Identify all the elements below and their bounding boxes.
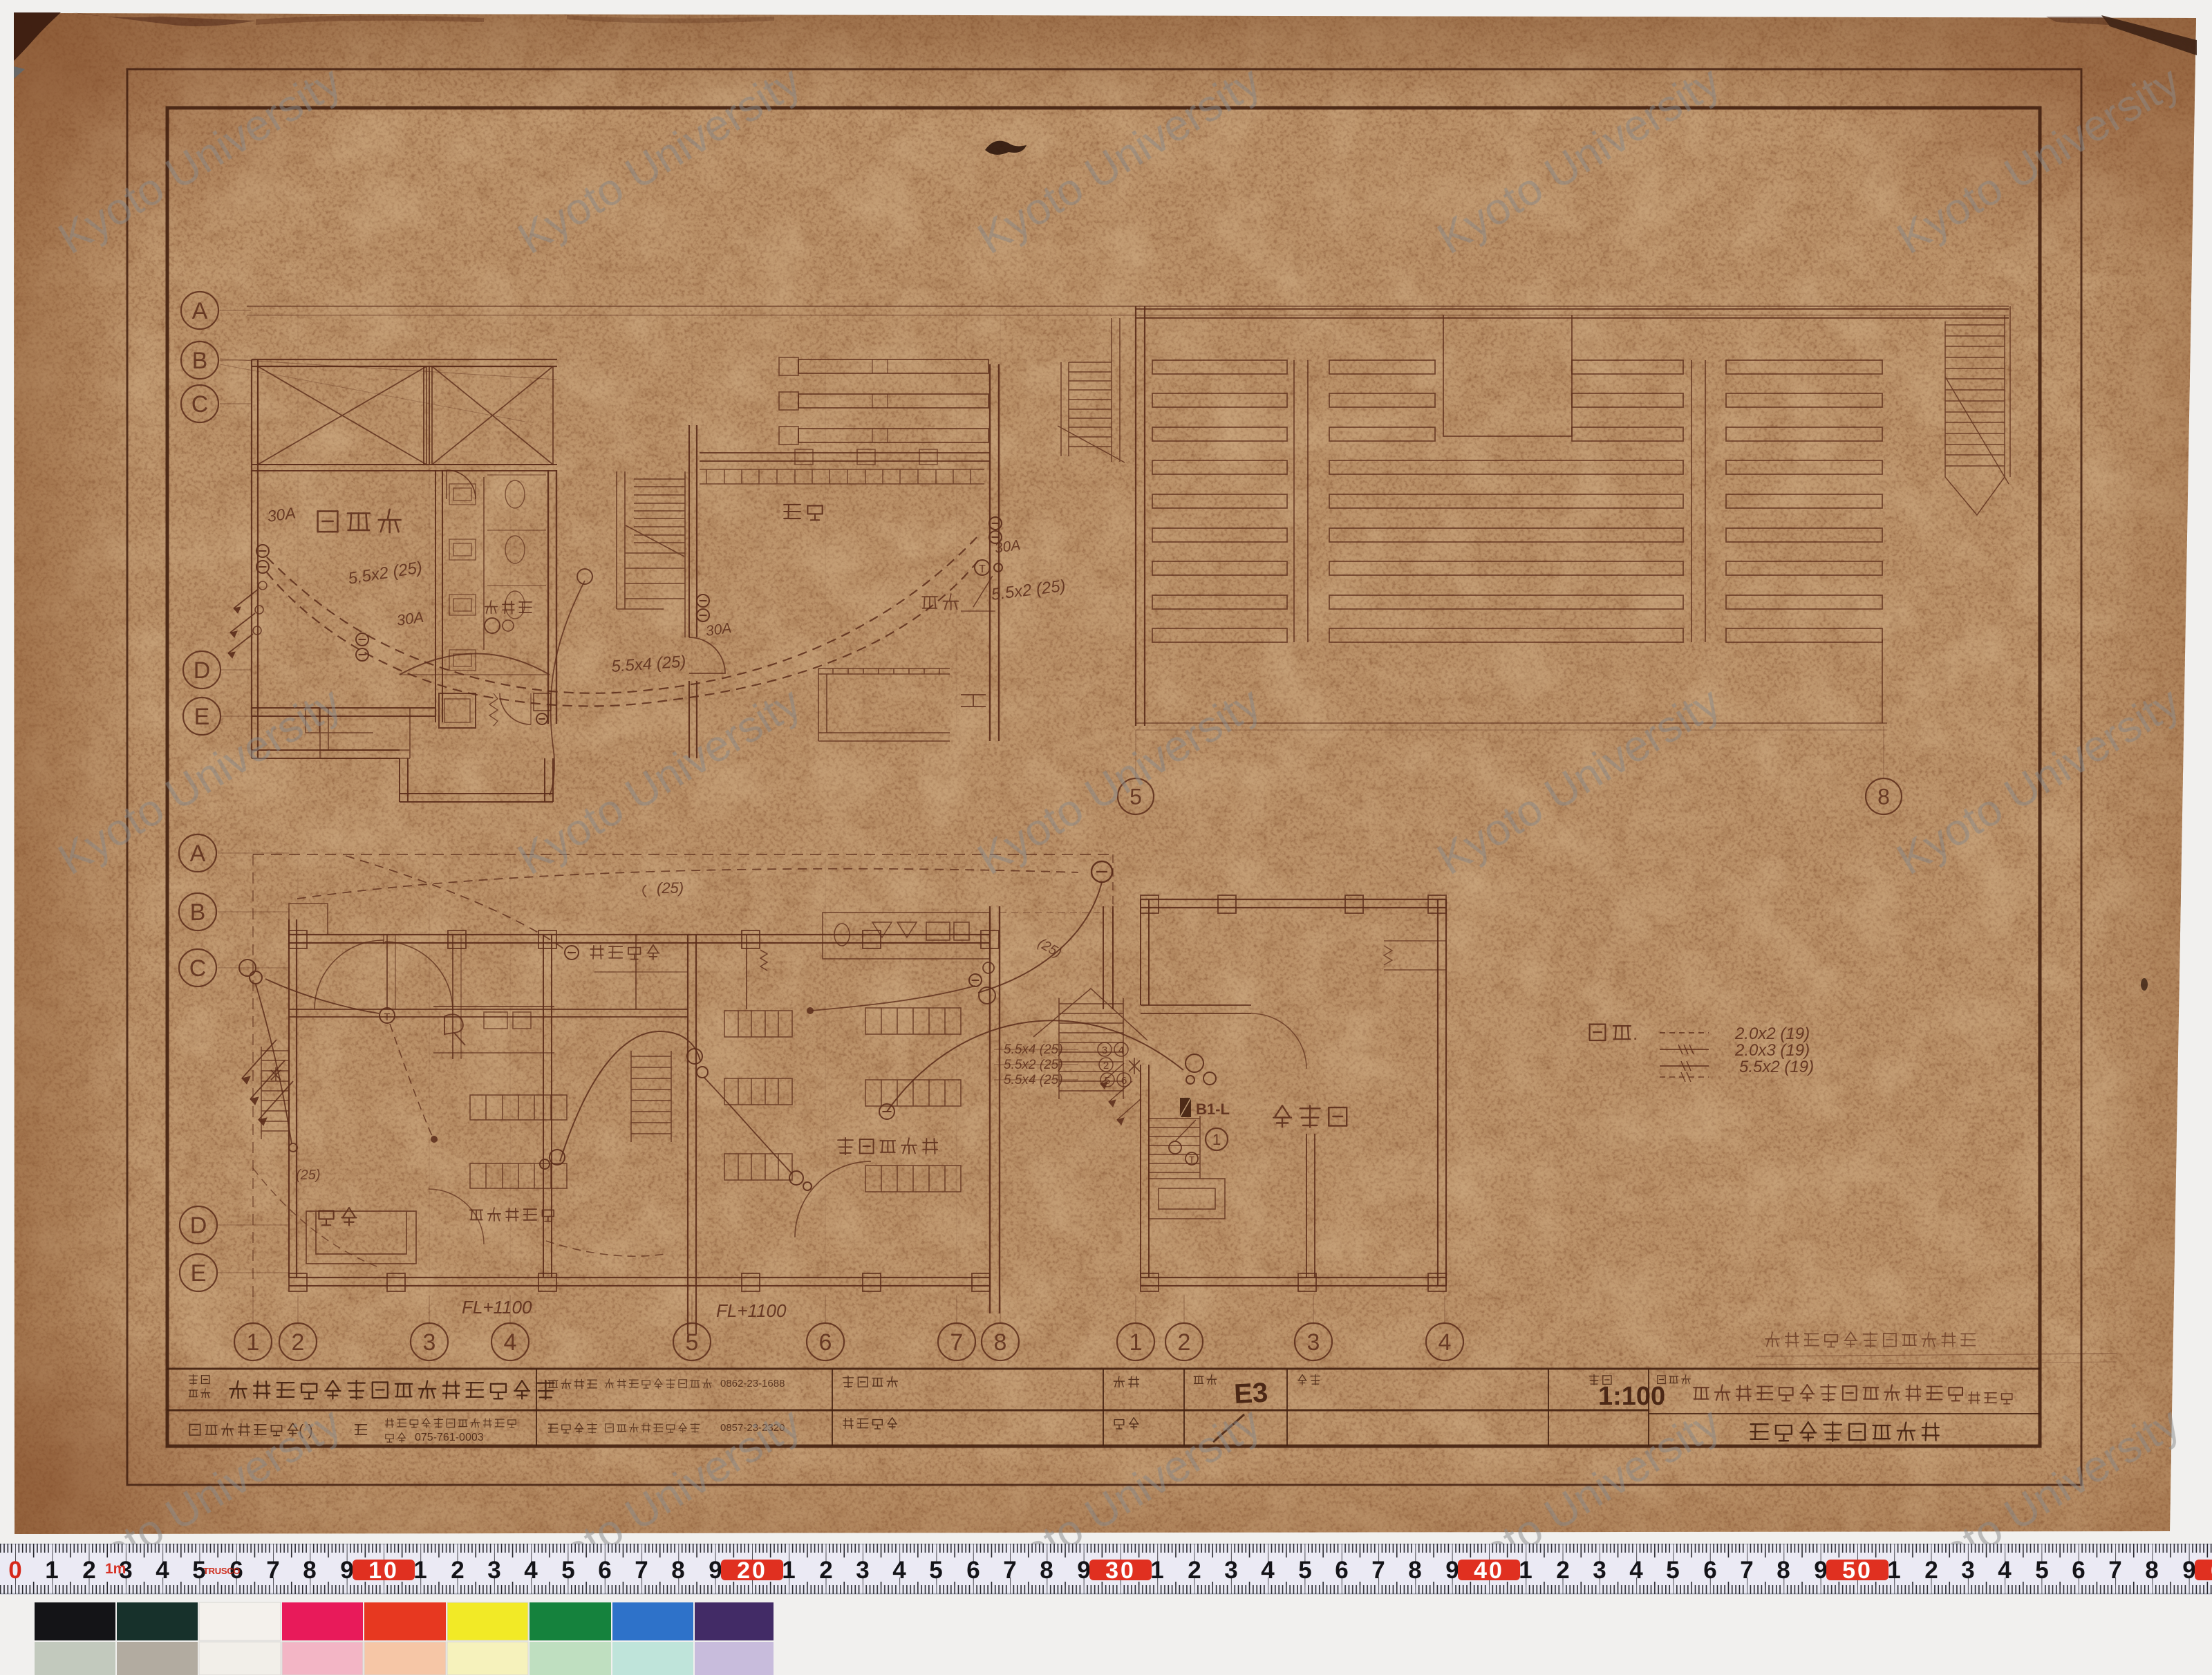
svg-text:8: 8 (1040, 1557, 1053, 1584)
svg-text:1m: 1m (105, 1561, 126, 1577)
svg-text:9: 9 (1445, 1557, 1459, 1584)
svg-text:5: 5 (686, 1329, 699, 1356)
svg-text:3: 3 (1102, 1045, 1107, 1056)
svg-text:8: 8 (671, 1557, 684, 1584)
svg-text:T: T (384, 1011, 390, 1023)
svg-text:9: 9 (1077, 1557, 1090, 1584)
svg-text:7: 7 (266, 1557, 279, 1584)
svg-text:A: A (190, 841, 206, 867)
svg-text:2.0x3 (19): 2.0x3 (19) (1734, 1041, 1810, 1060)
svg-text:1: 1 (1212, 1131, 1221, 1148)
svg-text:1: 1 (1887, 1557, 1900, 1584)
svg-text:4: 4 (1118, 1045, 1124, 1056)
svg-text:(25): (25) (296, 1168, 321, 1183)
svg-text:8: 8 (1408, 1557, 1421, 1584)
svg-text:5: 5 (2035, 1557, 2048, 1584)
svg-text:3: 3 (856, 1557, 869, 1584)
svg-text:2.0x2 (19): 2.0x2 (19) (1734, 1024, 1810, 1043)
svg-text:2: 2 (1556, 1557, 1569, 1584)
svg-text:9: 9 (340, 1557, 353, 1584)
svg-text:8: 8 (303, 1557, 316, 1584)
svg-text:B: B (192, 348, 208, 374)
svg-text:3: 3 (1224, 1557, 1237, 1584)
svg-text:7: 7 (1740, 1557, 1753, 1584)
svg-text:075-761-0003: 075-761-0003 (415, 1432, 484, 1443)
svg-text:0862-23-1688: 0862-23-1688 (720, 1378, 785, 1389)
svg-text:E: E (191, 1260, 207, 1286)
svg-text:4: 4 (1998, 1557, 2012, 1584)
svg-text:D: D (194, 657, 211, 684)
svg-text:E: E (194, 704, 210, 730)
svg-text:6: 6 (966, 1557, 980, 1584)
svg-text:D: D (190, 1213, 207, 1239)
svg-text:4: 4 (892, 1557, 906, 1584)
svg-text:8: 8 (1777, 1557, 1790, 1584)
svg-text:9: 9 (2182, 1557, 2195, 1584)
svg-text:(25): (25) (657, 879, 684, 897)
svg-text:2: 2 (819, 1557, 832, 1584)
svg-text:4: 4 (1438, 1329, 1452, 1356)
svg-text:10: 10 (368, 1557, 399, 1584)
svg-text:FL+1100: FL+1100 (462, 1297, 532, 1318)
svg-text:5: 5 (1666, 1557, 1679, 1584)
svg-text:B1-L: B1-L (1196, 1101, 1230, 1118)
svg-text:6: 6 (819, 1329, 832, 1356)
svg-text:T: T (979, 563, 986, 575)
svg-text:6: 6 (598, 1557, 611, 1584)
svg-text:1: 1 (1130, 1329, 1143, 1356)
svg-text:2: 2 (1178, 1329, 1191, 1356)
svg-text:5.5x2 (19): 5.5x2 (19) (1739, 1058, 1814, 1076)
svg-text:.: . (1633, 1023, 1638, 1044)
svg-text:8: 8 (2145, 1557, 2158, 1584)
svg-text:7: 7 (1003, 1557, 1016, 1584)
svg-text:5: 5 (561, 1557, 574, 1584)
svg-text:2: 2 (1103, 1060, 1109, 1072)
svg-text:5.5x4 (25): 5.5x4 (25) (1004, 1073, 1063, 1087)
svg-text:1: 1 (782, 1557, 795, 1584)
svg-text:5: 5 (929, 1557, 942, 1584)
svg-text:5.5x2 (25): 5.5x2 (25) (1004, 1058, 1063, 1072)
svg-text:50: 50 (1842, 1557, 1873, 1584)
svg-text:3: 3 (1307, 1329, 1320, 1356)
svg-text:FL+1100: FL+1100 (716, 1300, 787, 1321)
svg-text:4: 4 (524, 1557, 538, 1584)
svg-text:7: 7 (635, 1557, 648, 1584)
svg-text:4: 4 (504, 1329, 517, 1356)
svg-text:3: 3 (423, 1329, 436, 1356)
svg-text:1: 1 (413, 1557, 427, 1584)
svg-text:40: 40 (1474, 1557, 1504, 1584)
svg-text:A: A (192, 298, 208, 324)
svg-text:2: 2 (451, 1557, 464, 1584)
svg-text:2: 2 (1188, 1557, 1201, 1584)
svg-text:9: 9 (1814, 1557, 1827, 1584)
svg-text:0: 0 (8, 1557, 21, 1584)
svg-text:3: 3 (1593, 1557, 1606, 1584)
svg-text:1: 1 (1519, 1557, 1532, 1584)
svg-text:2: 2 (292, 1329, 305, 1356)
svg-text:1: 1 (1150, 1557, 1163, 1584)
svg-text:30: 30 (1105, 1557, 1136, 1584)
svg-text:9: 9 (709, 1557, 722, 1584)
svg-text:C: C (189, 955, 207, 982)
svg-text:3: 3 (1961, 1557, 1974, 1584)
svg-text:2: 2 (82, 1557, 95, 1584)
svg-text:TRUSCO: TRUSCO (203, 1566, 240, 1576)
svg-text:7: 7 (1371, 1557, 1385, 1584)
svg-text:1: 1 (45, 1557, 58, 1584)
svg-text:5: 5 (1298, 1557, 1311, 1584)
svg-text:B: B (190, 899, 206, 926)
svg-text:5.5x4 (25): 5.5x4 (25) (1004, 1042, 1063, 1057)
svg-text:1: 1 (247, 1329, 260, 1356)
svg-text:4: 4 (1629, 1557, 1643, 1584)
svg-text:7: 7 (2108, 1557, 2121, 1584)
svg-text:2: 2 (1924, 1557, 1938, 1584)
svg-text:8: 8 (1877, 785, 1890, 810)
svg-text:1:100: 1:100 (1598, 1382, 1665, 1411)
svg-text:7: 7 (950, 1329, 964, 1356)
svg-text:6: 6 (2072, 1557, 2085, 1584)
svg-text:3: 3 (487, 1557, 500, 1584)
svg-text:20: 20 (737, 1557, 767, 1584)
svg-text:6: 6 (1121, 1075, 1127, 1087)
svg-text:8: 8 (994, 1329, 1007, 1356)
svg-text:C: C (191, 391, 209, 418)
svg-text:4: 4 (1261, 1557, 1275, 1584)
svg-text:T: T (1189, 1154, 1194, 1165)
svg-text:4: 4 (156, 1557, 169, 1584)
svg-text:6: 6 (1703, 1557, 1716, 1584)
svg-text:6: 6 (1335, 1557, 1348, 1584)
